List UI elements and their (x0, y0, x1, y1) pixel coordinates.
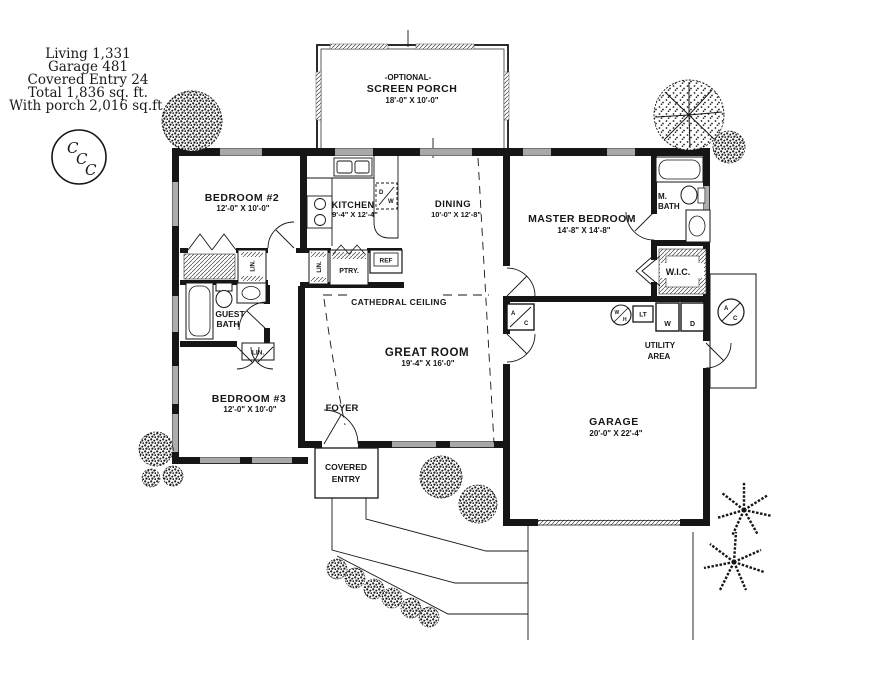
toilet-tank (698, 188, 705, 203)
garage-door (538, 520, 680, 526)
bedroom3-name: BEDROOM #3 (212, 393, 286, 405)
wh-label-h: H (623, 317, 627, 323)
master-name: MASTER BEDROOM (528, 213, 636, 225)
window-left-bed2 (173, 182, 179, 226)
ref-label: REF (380, 258, 393, 265)
walkway-edge (332, 498, 528, 583)
garage-dims: 20'-0" X 22'-4" (589, 429, 642, 438)
toilet (216, 291, 232, 308)
mbath-label-2: BATH (658, 202, 680, 211)
ac-label-c: C (733, 316, 738, 322)
master-dims: 14'-8" X 14'-8" (557, 226, 610, 235)
shrub-row (327, 559, 439, 627)
utility-fixtures: W H LT W D (611, 303, 704, 331)
door-entry (324, 410, 358, 444)
sink (689, 216, 705, 236)
garage-name: GARAGE (589, 416, 639, 428)
air-handler-closet: A C (507, 304, 534, 330)
utility-label-2: AREA (648, 352, 671, 361)
wic-label: W.I.C. (666, 267, 691, 277)
ac-label-c: C (524, 321, 529, 327)
cathedral-ceiling-label: CATHEDRAL CEILING (351, 297, 447, 307)
ac-label-a: A (511, 311, 516, 317)
shrub (713, 131, 745, 163)
door-master (507, 268, 535, 296)
lin-label: LIN. (251, 260, 257, 272)
covered-entry-label-2: ENTRY (332, 474, 361, 484)
toilet-tank (216, 283, 232, 291)
window-top-kitchen (335, 149, 373, 156)
shrub (163, 466, 183, 486)
covered-entry-slab (315, 448, 378, 498)
bedroom2-dims: 12'-0" X 10'-0" (216, 204, 269, 213)
ccc-logo: C C C (52, 130, 106, 184)
covered-entry-label-1: COVERED (325, 462, 367, 472)
door-garage (507, 334, 535, 362)
linen-closet-bed3: LIN. (242, 343, 274, 360)
tree-branched (654, 80, 724, 150)
refrigerator: REF (370, 250, 402, 273)
utility-label-1: UTILITY (645, 341, 676, 350)
pantry: PTRY. (330, 245, 368, 285)
bifold-door-icon (212, 234, 236, 250)
tree (162, 91, 222, 151)
window-left-bath (173, 296, 179, 332)
window-dining-slider (420, 149, 472, 156)
dining-name: DINING (435, 199, 471, 210)
bifold-door-icon (188, 234, 212, 250)
greatroom-dims: 19'-4" X 16'-0" (401, 359, 454, 368)
sink (242, 287, 260, 300)
bedroom2-closet (184, 254, 235, 279)
washer-label: W (664, 321, 671, 328)
window-top-bed2 (220, 149, 262, 156)
floor-plan-page: Living 1,331 Garage 481 Covered Entry 24… (0, 0, 875, 676)
wh-label-w: W (615, 310, 620, 316)
lt-label: LT (639, 312, 646, 319)
window-master-1 (523, 149, 551, 156)
window-left-bed3b (173, 414, 179, 452)
exterior-ac-pad: A C (710, 274, 756, 388)
bedroom2-name: BEDROOM #2 (205, 192, 279, 204)
porch-dims-label: 18'-0" X 10'-0" (385, 96, 438, 105)
bedroom3-dims: 12'-0" X 10'-0" (223, 405, 276, 414)
ac-label-a: A (724, 306, 729, 312)
kitchen-dims: 9'-4" X 12'-4" (332, 210, 378, 219)
greatroom-name: GREAT ROOM (385, 347, 469, 359)
dw-label-d: D (379, 190, 384, 196)
kitchen-name: KITCHEN (332, 200, 375, 210)
dryer-label: D (690, 321, 695, 328)
window-greatroom-2 (450, 442, 494, 448)
shrub (459, 485, 497, 523)
guest-bath-label-2: BATH (217, 319, 240, 329)
area-summary: Living 1,331 Garage 481 Covered Entry 24… (9, 46, 167, 114)
palm-tree (717, 482, 772, 536)
window-bed3-bottom-2 (252, 458, 292, 464)
door-wic (636, 256, 660, 286)
window-master-2 (607, 149, 635, 156)
lin-label: LIN. (317, 261, 323, 273)
mbath-label-1: M. (658, 192, 667, 201)
toilet (681, 186, 697, 204)
dining-dims: 10'-0" X 12'-8" (431, 210, 481, 219)
window-bed3-bottom-1 (200, 458, 240, 464)
shrub (142, 469, 160, 487)
shrub (139, 432, 173, 466)
guest-bath-label-1: GUEST (215, 309, 245, 319)
window-greatroom-1 (392, 442, 436, 448)
window-left-bed3a (173, 366, 179, 404)
porch-name-label: SCREEN PORCH (367, 83, 458, 95)
shrub (420, 456, 462, 498)
floor-plan-drawing: Living 1,331 Garage 481 Covered Entry 24… (0, 0, 875, 676)
porch-optional-label: -OPTIONAL- (385, 73, 432, 82)
dw-label-w: W (388, 199, 394, 205)
summary-with-porch: With porch 2,016 sq.ft. (9, 98, 167, 114)
pantry-label: PTRY. (339, 268, 359, 275)
logo-letter: C (85, 161, 97, 179)
foyer-label: FOYER (326, 403, 359, 414)
palm-tree (704, 532, 764, 590)
door-bedroom2 (268, 222, 294, 248)
linen-closet-hall-1: LIN. (238, 250, 266, 283)
dishwasher: D W (376, 183, 397, 209)
kitchen-sink (334, 158, 372, 176)
linen-closet-hall-2: LIN. (309, 250, 328, 284)
kitchen-range (307, 196, 332, 228)
